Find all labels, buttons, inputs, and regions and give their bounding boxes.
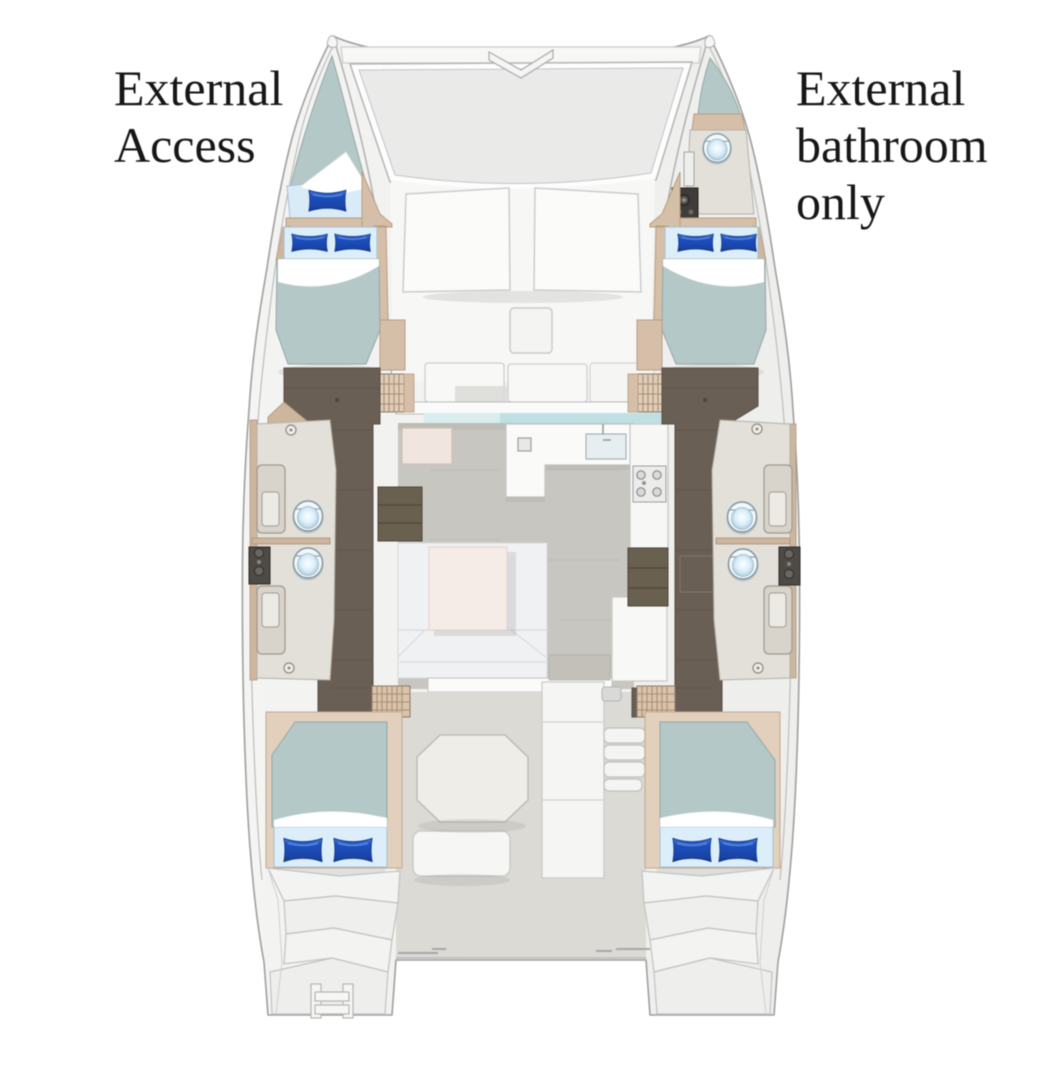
- svg-text:bathroom: bathroom: [796, 117, 988, 173]
- svg-text:only: only: [796, 174, 885, 230]
- svg-text:Access: Access: [114, 117, 256, 173]
- svg-text:External: External: [114, 60, 283, 116]
- svg-text:External: External: [796, 60, 965, 116]
